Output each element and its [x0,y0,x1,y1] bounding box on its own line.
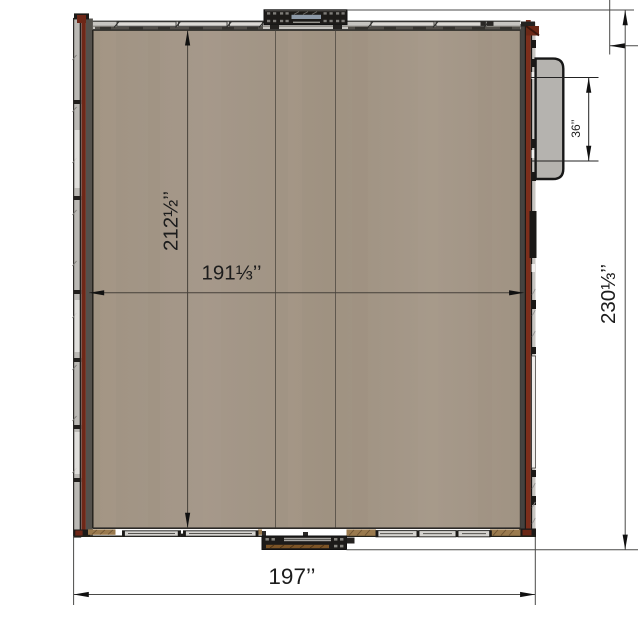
svg-text:191⅓’’: 191⅓’’ [201,262,261,285]
svg-text:212½’’: 212½’’ [160,191,183,251]
svg-text:36’’: 36’’ [569,119,583,137]
svg-text:230⅓’’: 230⅓’’ [597,264,620,324]
svg-text:197’’: 197’’ [268,564,315,589]
